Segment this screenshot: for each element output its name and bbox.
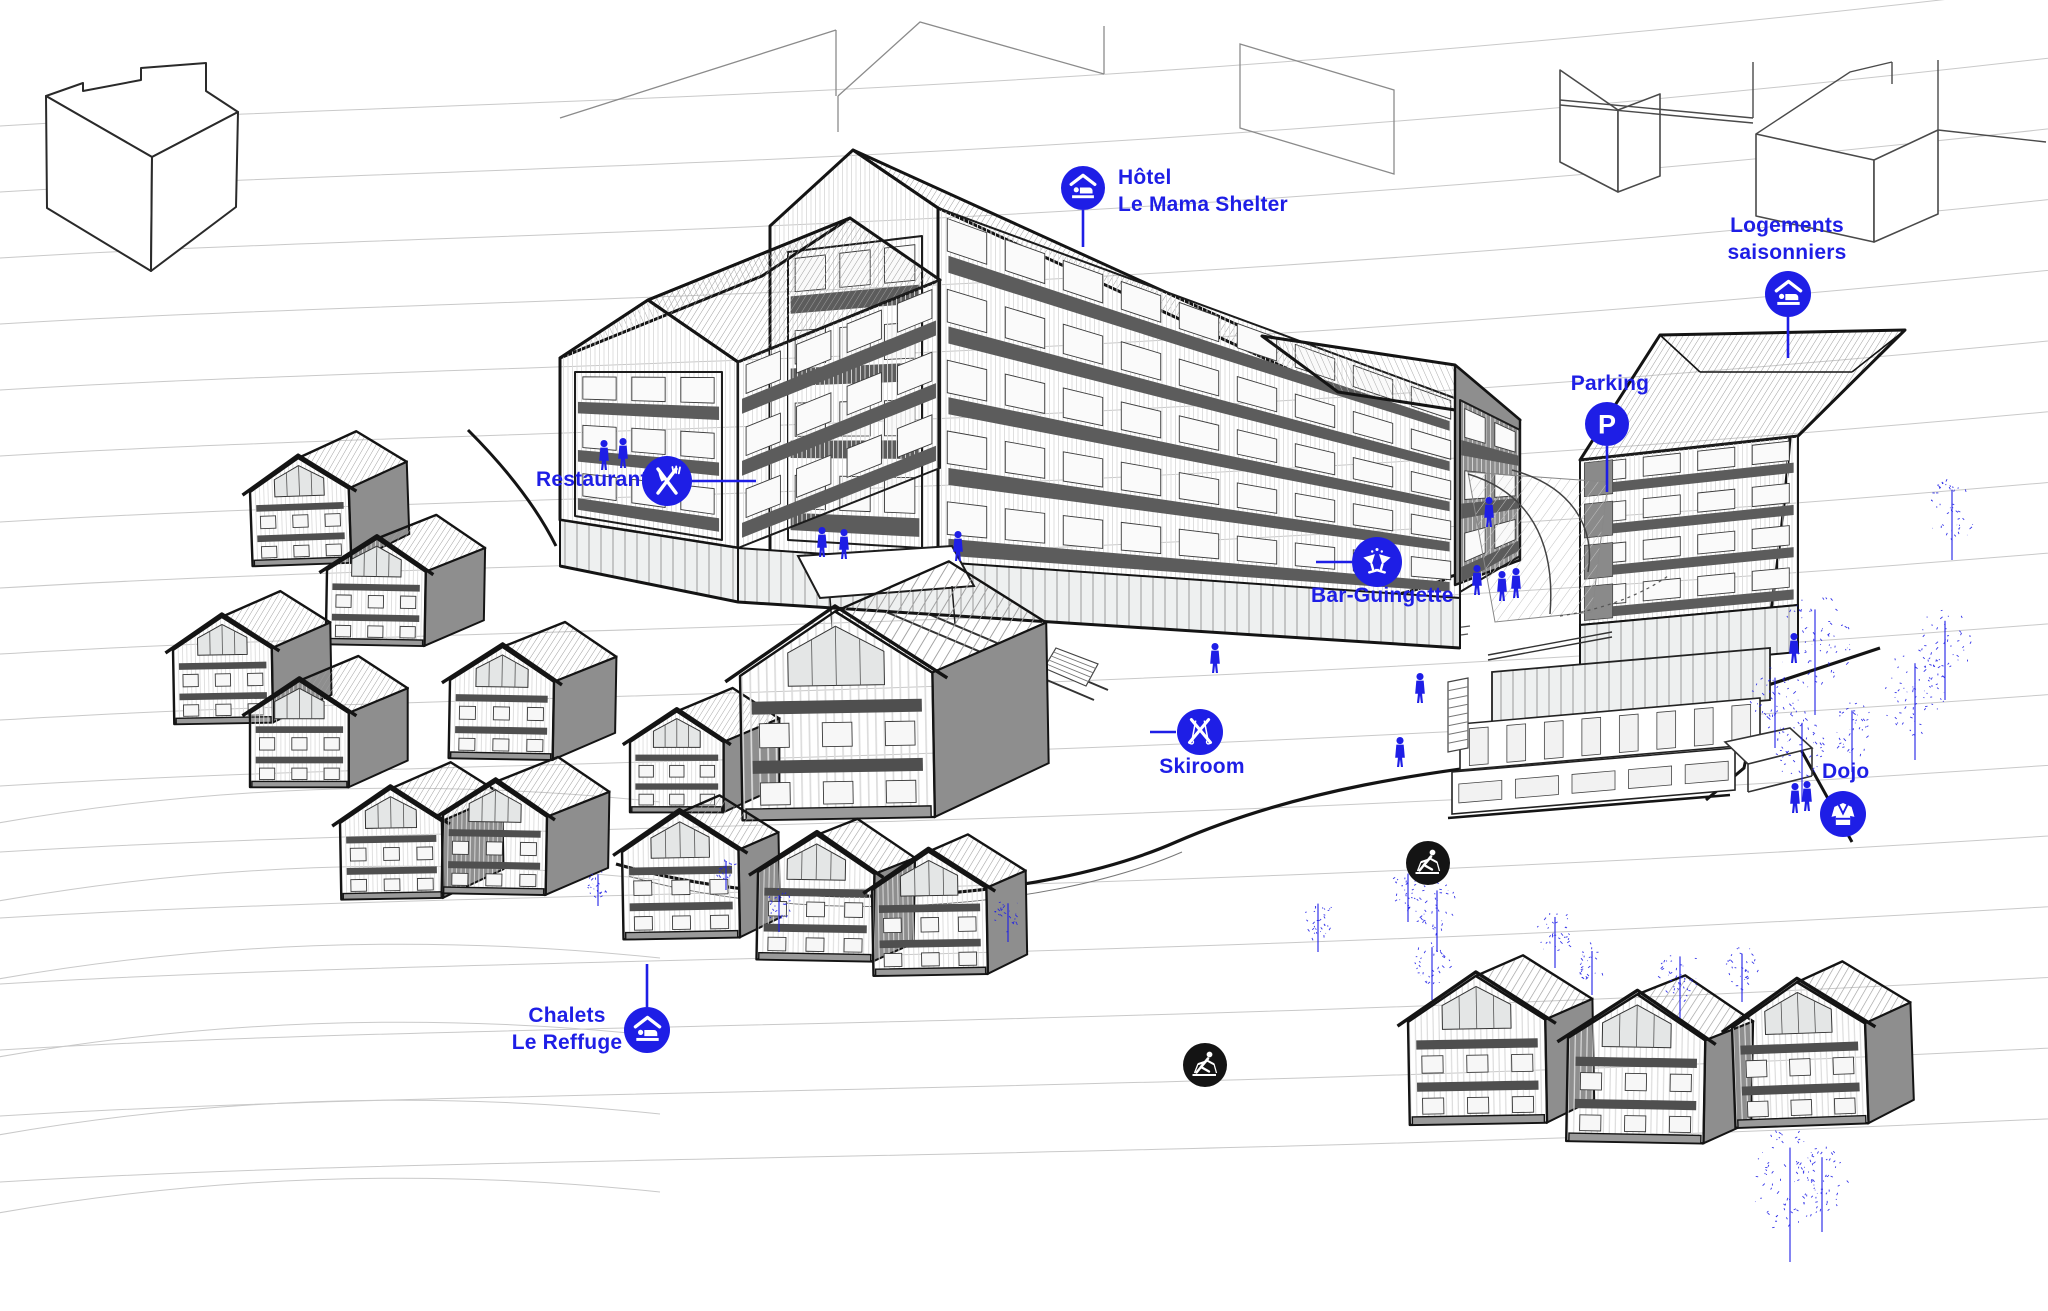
- person-silhouette: [1802, 781, 1812, 811]
- label-skiroom-line1: Skiroom: [1102, 753, 1302, 780]
- skier-icon: [1406, 841, 1450, 885]
- person-silhouette: [1472, 565, 1482, 595]
- tree: [1416, 879, 1456, 952]
- ski-icon: [1179, 711, 1221, 753]
- tree: [1931, 479, 1972, 560]
- tree: [1885, 648, 1943, 760]
- label-logements-line1: Logements: [1627, 212, 1947, 239]
- label-logements: Logements saisonniers: [1627, 212, 1947, 266]
- label-restaurant-line1: Restaurant: [536, 466, 648, 493]
- parking-icon: P: [1585, 402, 1629, 446]
- site-plan: Hôtel Le Mama Shelter Logements saisonni…: [0, 0, 2048, 1311]
- person-silhouette: [1789, 633, 1799, 663]
- tree: [1537, 913, 1571, 968]
- label-chalets: Chalets Le Reffuge: [417, 1002, 717, 1056]
- lodging-icon: [1768, 274, 1809, 315]
- logements-marker: [1765, 271, 1811, 317]
- skiroom-marker: [1177, 709, 1223, 755]
- label-dojo-line1: Dojo: [1822, 758, 1869, 785]
- label-dojo: Dojo: [1822, 758, 1869, 785]
- person-silhouette: [1790, 783, 1800, 813]
- label-parking-line1: Parking: [1510, 370, 1710, 397]
- skier-badge-1: [1406, 841, 1450, 885]
- tree: [1305, 904, 1332, 952]
- lodging-icon: [627, 1010, 668, 1051]
- label-hotel: Hôtel Le Mama Shelter: [1118, 164, 1288, 218]
- label-chalets-line1: Chalets: [417, 1002, 717, 1029]
- person-silhouette: [1415, 673, 1425, 703]
- person-silhouette: [1395, 737, 1405, 767]
- svg-text:P: P: [1598, 410, 1616, 440]
- label-skiroom: Skiroom: [1102, 753, 1302, 780]
- tree: [1755, 1131, 1828, 1262]
- tree: [1918, 610, 1971, 700]
- dojo-marker: [1820, 791, 1866, 837]
- label-chalets-line2: Le Reffuge: [417, 1029, 717, 1056]
- tree: [588, 872, 607, 906]
- label-logements-line2: saisonniers: [1627, 239, 1947, 266]
- label-restaurant: Restaurant: [536, 466, 648, 493]
- dojo-kimono-icon: [1822, 793, 1864, 835]
- label-parking: Parking: [1510, 370, 1710, 397]
- chalets-marker: [624, 1007, 670, 1053]
- restaurant-icon: [645, 459, 689, 503]
- bar-guinguette-icon: [1355, 540, 1399, 584]
- parking-marker: P: [1585, 402, 1629, 446]
- lodging-icon: [1063, 168, 1103, 208]
- restaurant-marker: [642, 456, 692, 506]
- tree: [1580, 942, 1603, 995]
- site-plan-drawing: [0, 0, 2048, 1311]
- chalet-building: [441, 620, 617, 761]
- skier-badge-2: [1183, 1043, 1227, 1087]
- hotel-marker: [1061, 166, 1105, 210]
- label-hotel-line1: Hôtel: [1118, 164, 1288, 191]
- chalet-building: [1396, 954, 1594, 1125]
- person-silhouette: [1210, 643, 1220, 673]
- tree: [1798, 1147, 1848, 1232]
- bar-guingette-marker: [1352, 537, 1402, 587]
- skier-icon: [1183, 1043, 1227, 1087]
- label-hotel-line2: Le Mama Shelter: [1118, 191, 1288, 218]
- tree: [1776, 711, 1825, 802]
